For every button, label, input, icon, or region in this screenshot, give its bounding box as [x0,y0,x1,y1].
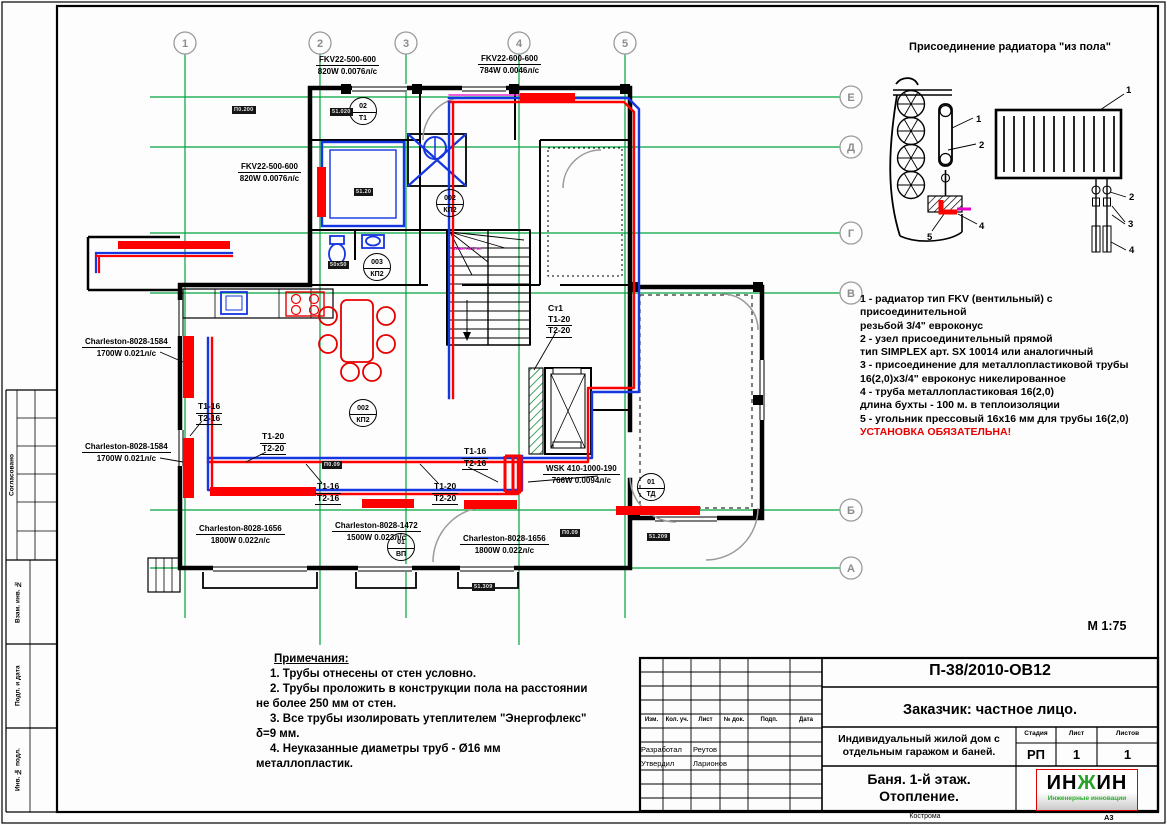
pipe-return-label: Т2-16 [196,414,222,426]
note-line: 4. Неуказанные диаметры труб - Ø16 мм [256,742,601,757]
callout-r2: 2 [1129,192,1134,203]
company-logo: ИНЖИН Инженерные инновации [1036,769,1138,811]
pipe-return-label: Т2-16 [462,459,488,471]
detail-title: Присоединение радиатора "из пола" [860,41,1160,53]
notes-block: Примечания: 1. Трубы отнесены от стен ус… [256,652,601,772]
radiator-model: Charleston-8028-1472 [332,521,421,532]
approved-name: Ларионов [693,759,727,768]
margin-approved: Согласовано [6,392,18,558]
room-tag: 50x50 [328,261,349,269]
stair-note: Вых. на 2 эт. [454,246,482,251]
room-tag: П0.09 [322,461,342,469]
pipe-supply-label: Т1-16 [196,402,222,414]
mark-bottom: КП2 [350,415,376,424]
logo-subtitle: Инженерные инновации [1037,795,1137,802]
pipe-supply-label: Т1-20 [432,482,458,494]
radiator-label: Charleston-8028-1656 1800W 0.022л/с [460,534,549,555]
radiator-spec: 820W 0.0076л/с [316,66,379,76]
stamp-col-izm: Изм. [640,717,663,723]
radiator-model: Charleston-8028-1584 [82,442,171,453]
logo-part3: ИН [1097,772,1128,794]
radiator-model: Charleston-8028-1584 [82,337,171,348]
room-tag: П0.09 [560,529,580,537]
mark-bottom: ВП [388,549,414,558]
radiator-model: FKV22-600-600 [478,54,541,65]
sauna-loop [322,142,404,226]
axis-col-2: 2 [317,38,323,50]
callout-4: 4 [979,221,985,232]
doc-number: П-38/2010-ОВ12 [822,662,1158,680]
equipment-mark: 003КП2 [363,253,391,281]
legend-warning: УСТАНОВКА ОБЯЗАТЕЛЬНА! [860,426,1160,439]
room-tag: 51.209 [647,533,670,541]
legend-line: 4 - труба металлопластиковая 16(2,0) [860,386,1160,399]
stamp-col-dok: № док. [720,717,748,723]
axis-row-d: Д [847,142,855,154]
callout-r3: 3 [1128,219,1133,230]
radiator-spec: 1800W 0.022л/с [460,545,549,555]
mark-top: 003 [364,254,390,269]
radiators [118,93,700,515]
axis-col-4: 4 [516,38,523,50]
project-description: Индивидуальный жилой дом с отдельным гар… [826,733,1012,759]
mark-bottom: КП2 [437,205,463,214]
shaft [529,368,591,454]
pipe-return-label: Т2-16 [315,494,341,506]
approved-label: Утвердил [641,759,674,768]
pipe-return-label: Т2-20 [432,494,458,506]
radiator-label: FKV22-500-600 820W 0.0076л/с [316,55,379,76]
room-tag: 51.020 [330,108,353,116]
axis-col-3: 3 [403,38,409,50]
room-tag: 51.20 [354,188,373,196]
stamp-col-list: Лист [691,717,720,723]
radiator-spec: 820W 0.0076л/с [238,173,301,183]
axis-row-g: Г [848,228,855,240]
mark-bottom: Т1 [350,113,376,122]
radiator-spec: 766W 0.0094л/с [543,475,620,485]
radiator-label: FKV22-500-600 820W 0.0076л/с [238,162,301,183]
dining-furniture [319,300,395,381]
sheet-title-line1: Баня. 1-й этаж. [822,771,1016,788]
mark-bottom: ТД [638,489,664,498]
radiator-model: WSK 410-1000-190 [543,464,620,475]
stamp-col-podp: Подп. [748,717,790,723]
stage-value: РП [1016,747,1056,762]
detail-drawing: 1 2 4 5 1 2 3 4 [890,78,1135,256]
equipment-mark: 002КП2 [349,399,377,427]
logo-part1: ИН [1047,772,1078,794]
sheet-header: Лист [1056,730,1097,737]
kitchen-sink [221,292,247,314]
axis-row-a: А [847,563,855,575]
mark-top: 02 [350,98,376,113]
stamp-col-data: Дата [790,717,822,723]
customer: Заказчик: частное лицо. [822,702,1158,718]
radiator-spec: 1700W 0.021л/с [82,348,171,358]
riser-name: Ст1 [546,304,565,315]
bay-windows [148,558,518,592]
pipe-supply-main [208,98,639,458]
radiator-spec: 784W 0.0046л/с [478,65,541,75]
margin-podp: Подп. и дата [6,646,30,726]
note-line: 3. Все трубы изолировать утеплителем "Эн… [256,712,601,727]
axis-row-e: Е [847,92,854,104]
pipe-label: Т1-16 Т2-16 [315,482,341,505]
logo-text: ИНЖИН [1037,772,1137,794]
stamp-col-koluch: Кол. уч. [663,717,691,723]
radiator-spec: 1800W 0.022л/с [196,535,285,545]
developed-name: Реутов [693,745,717,754]
equipment-mark: 002КП2 [436,189,464,217]
margin-inv: Инв. № подл. [6,730,30,810]
door-swings [423,97,758,562]
radiator-label: FKV22-600-600 784W 0.0046л/с [478,54,541,75]
city-label: Кострома [880,813,970,820]
note-line: не более 250 мм от стен. [256,697,601,712]
riser-label: Ст1 Т1-20 Т2-20 [546,304,572,338]
equipment-mark: 01ВП [387,533,415,561]
legend-line: 1 - радиатор тип FKV (вентильный) с прис… [860,293,1160,320]
drawing-sheet: 1 2 3 4 5 Е Д Г В Б А [0,0,1167,825]
radiator-model: Charleston-8028-1656 [460,534,549,545]
pipe-supply-label: Т1-20 [260,432,286,444]
mark-bottom: КП2 [364,269,390,278]
sheet-value: 1 [1056,747,1097,762]
scale-label: М 1:75 [1062,619,1152,633]
callout-r1: 1 [1126,85,1132,96]
legend-block: 1 - радиатор тип FKV (вентильный) с прис… [860,293,1160,439]
mark-top: 002 [437,190,463,205]
note-line: 1. Трубы отнесены от стен условно. [256,667,601,682]
windows [176,84,766,572]
axis-col-1: 1 [182,38,188,50]
legend-line: тип SIMPLEX арт. SX 10014 или аналогичны… [860,346,1160,359]
pipe-label: Т1-20 Т2-20 [432,482,458,505]
sheet-title: Баня. 1-й этаж. Отопление. [822,771,1016,805]
riser-return: Т2-20 [546,326,572,338]
axis-col-5: 5 [622,38,628,50]
room-tag: П0.200 [232,106,256,114]
pipe-supply-label: Т1-16 [315,482,341,494]
equipment-mark: 01ТД [637,473,665,501]
legend-line: резьбой 3/4" евроконус [860,320,1160,333]
logo-part2: Ж [1077,772,1096,794]
axis-row-v: В [847,288,855,300]
note-line: δ=9 мм. [256,727,601,742]
room-tag: 51.309 [472,583,495,591]
radiator-label: Charleston-8028-1584 1700W 0.021л/с [82,337,171,358]
stove [286,292,324,316]
detail-section-view [890,78,977,241]
callout-2: 2 [979,140,984,151]
sheets-header: Листов [1097,730,1158,737]
legend-line: 16(2,0)х3/4" евроконус никелированное [860,373,1160,386]
notes-title: Примечания: [256,652,601,667]
stage-header: Стадия [1016,730,1056,737]
mark-top: 002 [350,400,376,415]
margin-vzam: Взам. инв. № [6,562,30,642]
hatched-pier [529,368,543,454]
radiator-spec: 1700W 0.021л/с [82,453,171,463]
detail-front-view [996,94,1126,252]
radiator-model: FKV22-500-600 [316,55,379,66]
equipment-mark: 02Т1 [349,97,377,125]
washbasin [362,235,384,248]
legend-line: 2 - узел присоединительный прямой [860,333,1160,346]
axis-bubbles [174,32,862,579]
radiator-model: Charleston-8028-1656 [196,524,285,535]
vent-shaft [408,134,466,186]
pipe-return-label: Т2-20 [260,444,286,456]
pipe-label: Т1-16 Т2-16 [462,447,488,470]
legend-line: длина бухты - 100 м. в теплоизоляции [860,399,1160,412]
callout-1: 1 [976,114,982,125]
sheets-value: 1 [1097,747,1158,762]
format-label: А3 [1104,813,1114,822]
axis-grid [150,54,840,645]
radiator-label: WSK 410-1000-190 766W 0.0094л/с [543,464,620,485]
callout-5: 5 [927,232,933,243]
legend-line: 3 - присоединение для металлопластиковой… [860,359,1160,372]
pipe-supply-label: Т1-16 [462,447,488,459]
note-line: 2. Трубы проложить в конструкции пола на… [256,682,601,697]
mark-top: 01 [388,534,414,549]
pipe-label: Т1-16 Т2-16 [196,402,222,425]
mark-top: 01 [638,474,664,489]
note-line: металлопластик. [256,757,601,772]
legend-line: 5 - угольник прессовый 16х16 мм для труб… [860,413,1160,426]
sheet-title-line2: Отопление. [822,788,1016,805]
pipe-label: Т1-20 Т2-20 [260,432,286,455]
developed-label: Разработал [641,745,682,754]
callout-r4: 4 [1129,245,1135,256]
radiator-label: Charleston-8028-1584 1700W 0.021л/с [82,442,171,463]
axis-row-b: Б [847,505,855,517]
toilet [329,236,345,264]
radiator-label: Charleston-8028-1656 1800W 0.022л/с [196,524,285,545]
radiator-model: FKV22-500-600 [238,162,301,173]
